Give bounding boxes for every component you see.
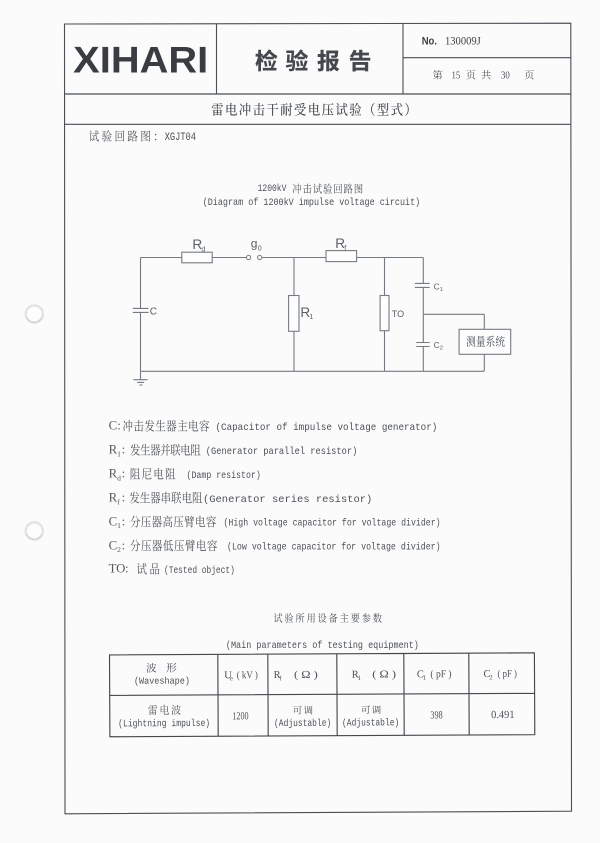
svg-text:(Diagram of 1200kV impulse vol: (Diagram of 1200kV impulse voltage circu… [203,197,421,209]
svg-text:2: 2 [440,346,443,352]
svg-text:(Capacitor of impulse voltage: (Capacitor of impulse voltage generator) [216,422,438,434]
svg-text:1: 1 [358,675,361,682]
svg-text:(Damp resistor): (Damp resistor) [187,470,261,482]
svg-text::: : [122,514,126,528]
svg-text:( kV ): ( kV ) [237,670,259,681]
svg-text::: : [125,562,129,576]
svg-text:( Ω ): ( Ω ) [372,669,396,680]
svg-text::: : [122,467,126,481]
svg-text:f: f [344,245,346,252]
svg-text:(Tested object): (Tested object) [164,565,235,577]
svg-text:(Generator series resistor): (Generator series resistor) [203,494,372,506]
svg-text:(Waveshape): (Waveshape) [134,676,190,687]
svg-text:130009J: 130009J [445,35,481,47]
svg-text:1: 1 [117,450,121,459]
svg-text:1200kV: 1200kV [258,183,287,195]
svg-text:2: 2 [117,545,121,554]
svg-text:(Adjustable): (Adjustable) [274,718,331,730]
svg-text:0: 0 [258,245,262,252]
svg-text:C: C [150,306,157,317]
svg-text:C: C [434,340,440,350]
svg-text:(Main parameters of testing eq: (Main parameters of testing equipment) [226,640,419,652]
svg-text:( pF ): ( pF ) [430,669,452,680]
svg-text:(Lightning impulse): (Lightning impulse) [118,718,210,730]
svg-text:g: g [251,236,258,250]
svg-text:30: 30 [501,70,510,81]
svg-text:C: C [434,281,440,291]
svg-text:TO: TO [109,562,126,576]
svg-text:(High voltage capacitor for vo: (High voltage capacitor for voltage divi… [224,518,441,530]
svg-text:398: 398 [430,709,443,721]
svg-text:No.: No. [422,35,437,47]
svg-text::: : [122,538,126,552]
svg-text:XGJT04: XGJT04 [165,132,196,144]
svg-text:1200: 1200 [232,710,249,722]
svg-text:1: 1 [440,287,443,293]
svg-text:XIHARI: XIHARI [73,39,208,80]
svg-text:C: C [109,514,118,528]
svg-text:e: e [230,676,233,683]
svg-text:15: 15 [452,70,461,81]
svg-text:( pF ): ( pF ) [497,669,517,680]
svg-text:C: C [109,538,118,552]
svg-text:( Ω ): ( Ω ) [294,670,318,681]
svg-text:(Generator parallel resistor): (Generator parallel resistor) [206,446,357,458]
svg-text:1: 1 [117,521,121,530]
svg-text:d: d [201,246,205,253]
svg-text:C: C [109,419,118,433]
svg-text::: : [117,419,121,433]
svg-text:0.491: 0.491 [491,709,514,721]
svg-text::: : [122,443,126,457]
svg-text:TO: TO [392,309,404,319]
svg-text:d: d [117,473,121,482]
svg-text:1: 1 [309,314,313,321]
svg-text:(Adjustable): (Adjustable) [342,717,399,729]
svg-text:1: 1 [423,675,426,682]
svg-text::: : [122,491,126,505]
svg-text:(Low voltage capacitor for vol: (Low voltage capacitor for voltage divid… [227,542,441,554]
